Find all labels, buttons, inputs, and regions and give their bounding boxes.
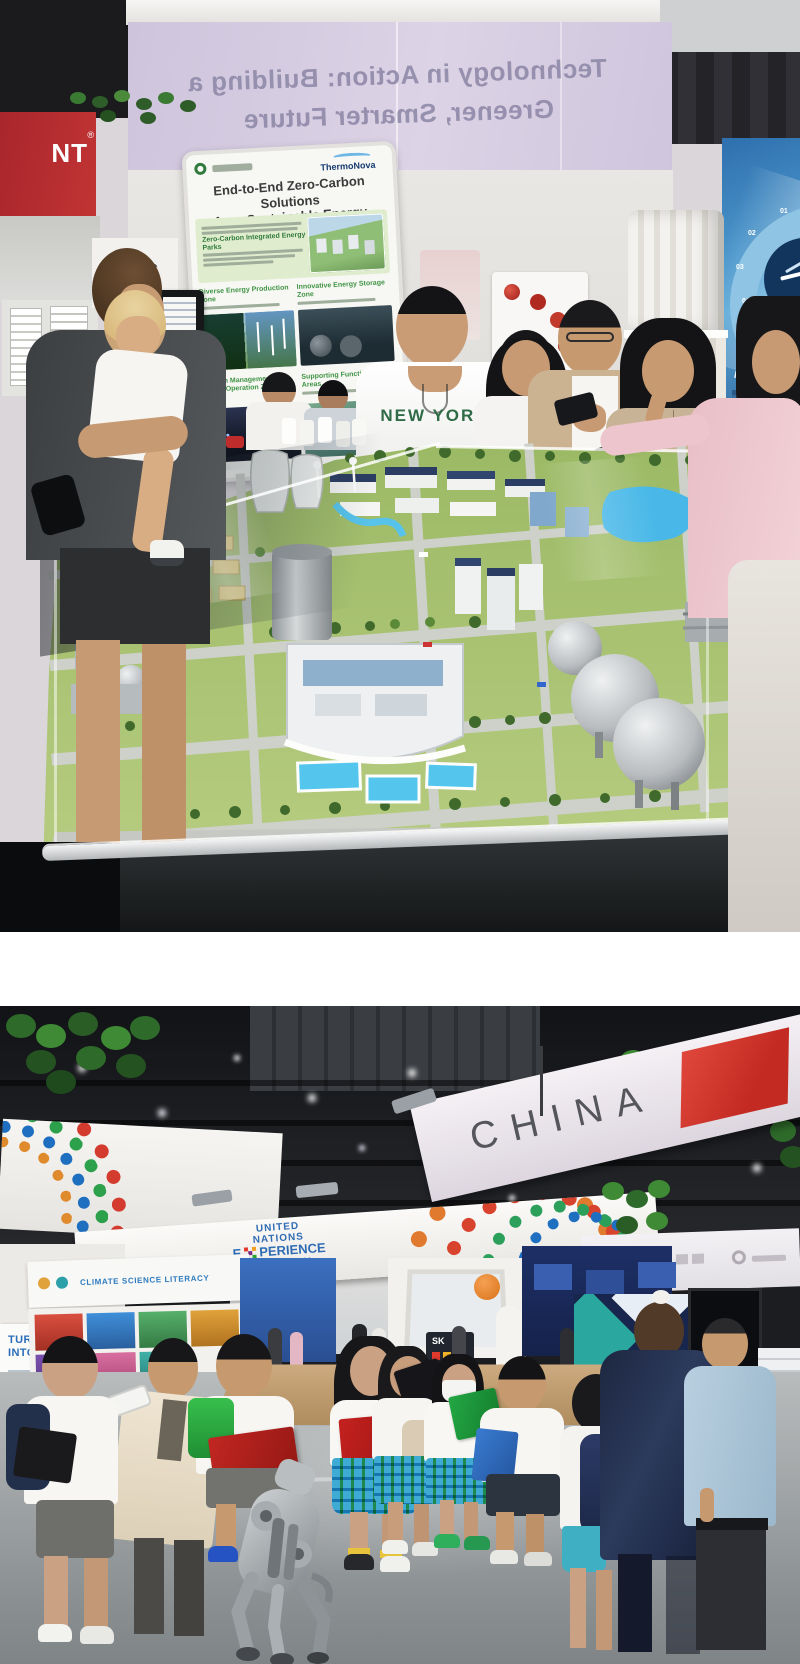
red-sphere-graphics (504, 284, 520, 300)
china-red-flag-shape (681, 1027, 790, 1128)
head (216, 1334, 272, 1398)
sk-text: SK (432, 1336, 445, 1346)
dark-truss-right (660, 52, 800, 144)
wheel-number: 03 (736, 264, 744, 271)
intro-line-blur (203, 261, 273, 268)
zone-label: Diverse Energy Production Zone (199, 284, 294, 305)
trousers (696, 1530, 766, 1650)
head (148, 1338, 198, 1398)
head (702, 1318, 748, 1370)
slogan-line1: Technology in Action: Building a (187, 53, 607, 99)
china-text: CHINA (466, 1076, 659, 1160)
climate-header-text: CLIMATE SCIENCE LITERACY (80, 1274, 210, 1288)
head (396, 286, 468, 368)
poster-card (86, 1312, 135, 1349)
white-gap (0, 932, 800, 1006)
banner-drop-rod (540, 1046, 543, 1116)
faint-logo-icon (732, 1250, 746, 1264)
storage-spheres (309, 334, 332, 357)
sign-brand-cn-blur (212, 163, 252, 172)
thermonova-logo: ThermoNova (320, 151, 385, 172)
leaf-cluster (70, 92, 86, 104)
inner-shirt (157, 1399, 187, 1461)
photo-exhibit-model: Technology in Action: Building a Greener… (0, 0, 800, 932)
climate-booth-header: CLIMATE SCIENCE LITERACY (27, 1254, 250, 1308)
faint-cn-text-blur (752, 1255, 786, 1262)
dark-shorts (60, 548, 210, 644)
sneakers (344, 1554, 374, 1570)
sign-brand-logo-icon (194, 163, 207, 176)
robot-joint (260, 1510, 272, 1522)
sneakers (490, 1550, 518, 1564)
wind-turbine-masts (256, 322, 260, 352)
face (752, 330, 800, 394)
photo-exhibit-hall: CHINA UNITED NATIONS EPERIENCE PAVILION (0, 1006, 800, 1664)
gray-shorts (36, 1500, 114, 1558)
wheel-number: 02 (748, 230, 756, 237)
slogan-line2: Greener, Smarter Future (243, 94, 555, 136)
sign-intro-panel: Zero-Carbon Integrated Energy Parks (195, 209, 390, 283)
aerial-render-image (307, 213, 386, 273)
zone-photo-storage (298, 305, 395, 366)
page: Technology in Action: Building a Greener… (0, 0, 800, 1664)
glass-corner-post (54, 554, 57, 884)
robot-foot (307, 1652, 329, 1664)
bird-logo-icon (785, 258, 800, 274)
left-banner-body (0, 216, 100, 302)
leaf-cluster (602, 1182, 624, 1200)
cylinder-booth-tower (628, 210, 724, 332)
navy-shorts (486, 1474, 560, 1516)
legs (570, 1568, 586, 1648)
sneakers (382, 1540, 408, 1554)
hand-behind-back (700, 1488, 714, 1522)
thermonova-wordmark: ThermoNova (320, 160, 375, 173)
orange-balloon (474, 1274, 500, 1300)
head (42, 1336, 98, 1400)
legs (388, 1502, 403, 1544)
robot-rear-leg (304, 1586, 324, 1660)
black-folder (13, 1426, 77, 1484)
legs (44, 1556, 68, 1628)
model-campus-building (285, 644, 465, 761)
legs (496, 1512, 514, 1554)
legs (350, 1512, 368, 1552)
zone-label: Innovative Energy Storage Zone (297, 279, 392, 300)
foliage-top-left (0, 1006, 170, 1101)
face (642, 340, 694, 402)
head (498, 1356, 546, 1412)
trousers (618, 1554, 652, 1652)
zone-cell-storage: Innovative Energy Storage Zone (297, 279, 395, 370)
trousers (134, 1538, 164, 1634)
sneakers (38, 1624, 72, 1642)
booth-screens (534, 1264, 572, 1290)
sign-intro-text: Zero-Carbon Integrated Energy Parks (201, 219, 307, 269)
torso-blue-shirt (684, 1366, 776, 1526)
robot-front-leg (238, 1578, 252, 1652)
robot-leg (274, 1590, 280, 1660)
white-scrunchie (652, 1290, 670, 1304)
red-brand-banner: NT ® (0, 112, 96, 216)
legs (440, 1500, 454, 1538)
legs (76, 640, 120, 850)
wheel-number: 01 (780, 208, 788, 215)
visitor-partial-right (728, 560, 800, 932)
red-banner-text: NT (51, 138, 88, 169)
mirrored-slogan: Technology in Action: Building a Greener… (147, 51, 649, 138)
ceiling-right (660, 0, 800, 58)
render-buildings (316, 238, 327, 253)
leaf-cluster (6, 1014, 36, 1038)
glasses-icon (566, 332, 614, 342)
robot-foot (236, 1647, 260, 1661)
registered-mark: ® (87, 130, 94, 140)
toddler-shoe (150, 540, 184, 566)
header-dots-icon (38, 1277, 50, 1289)
green-sneakers (434, 1534, 460, 1548)
